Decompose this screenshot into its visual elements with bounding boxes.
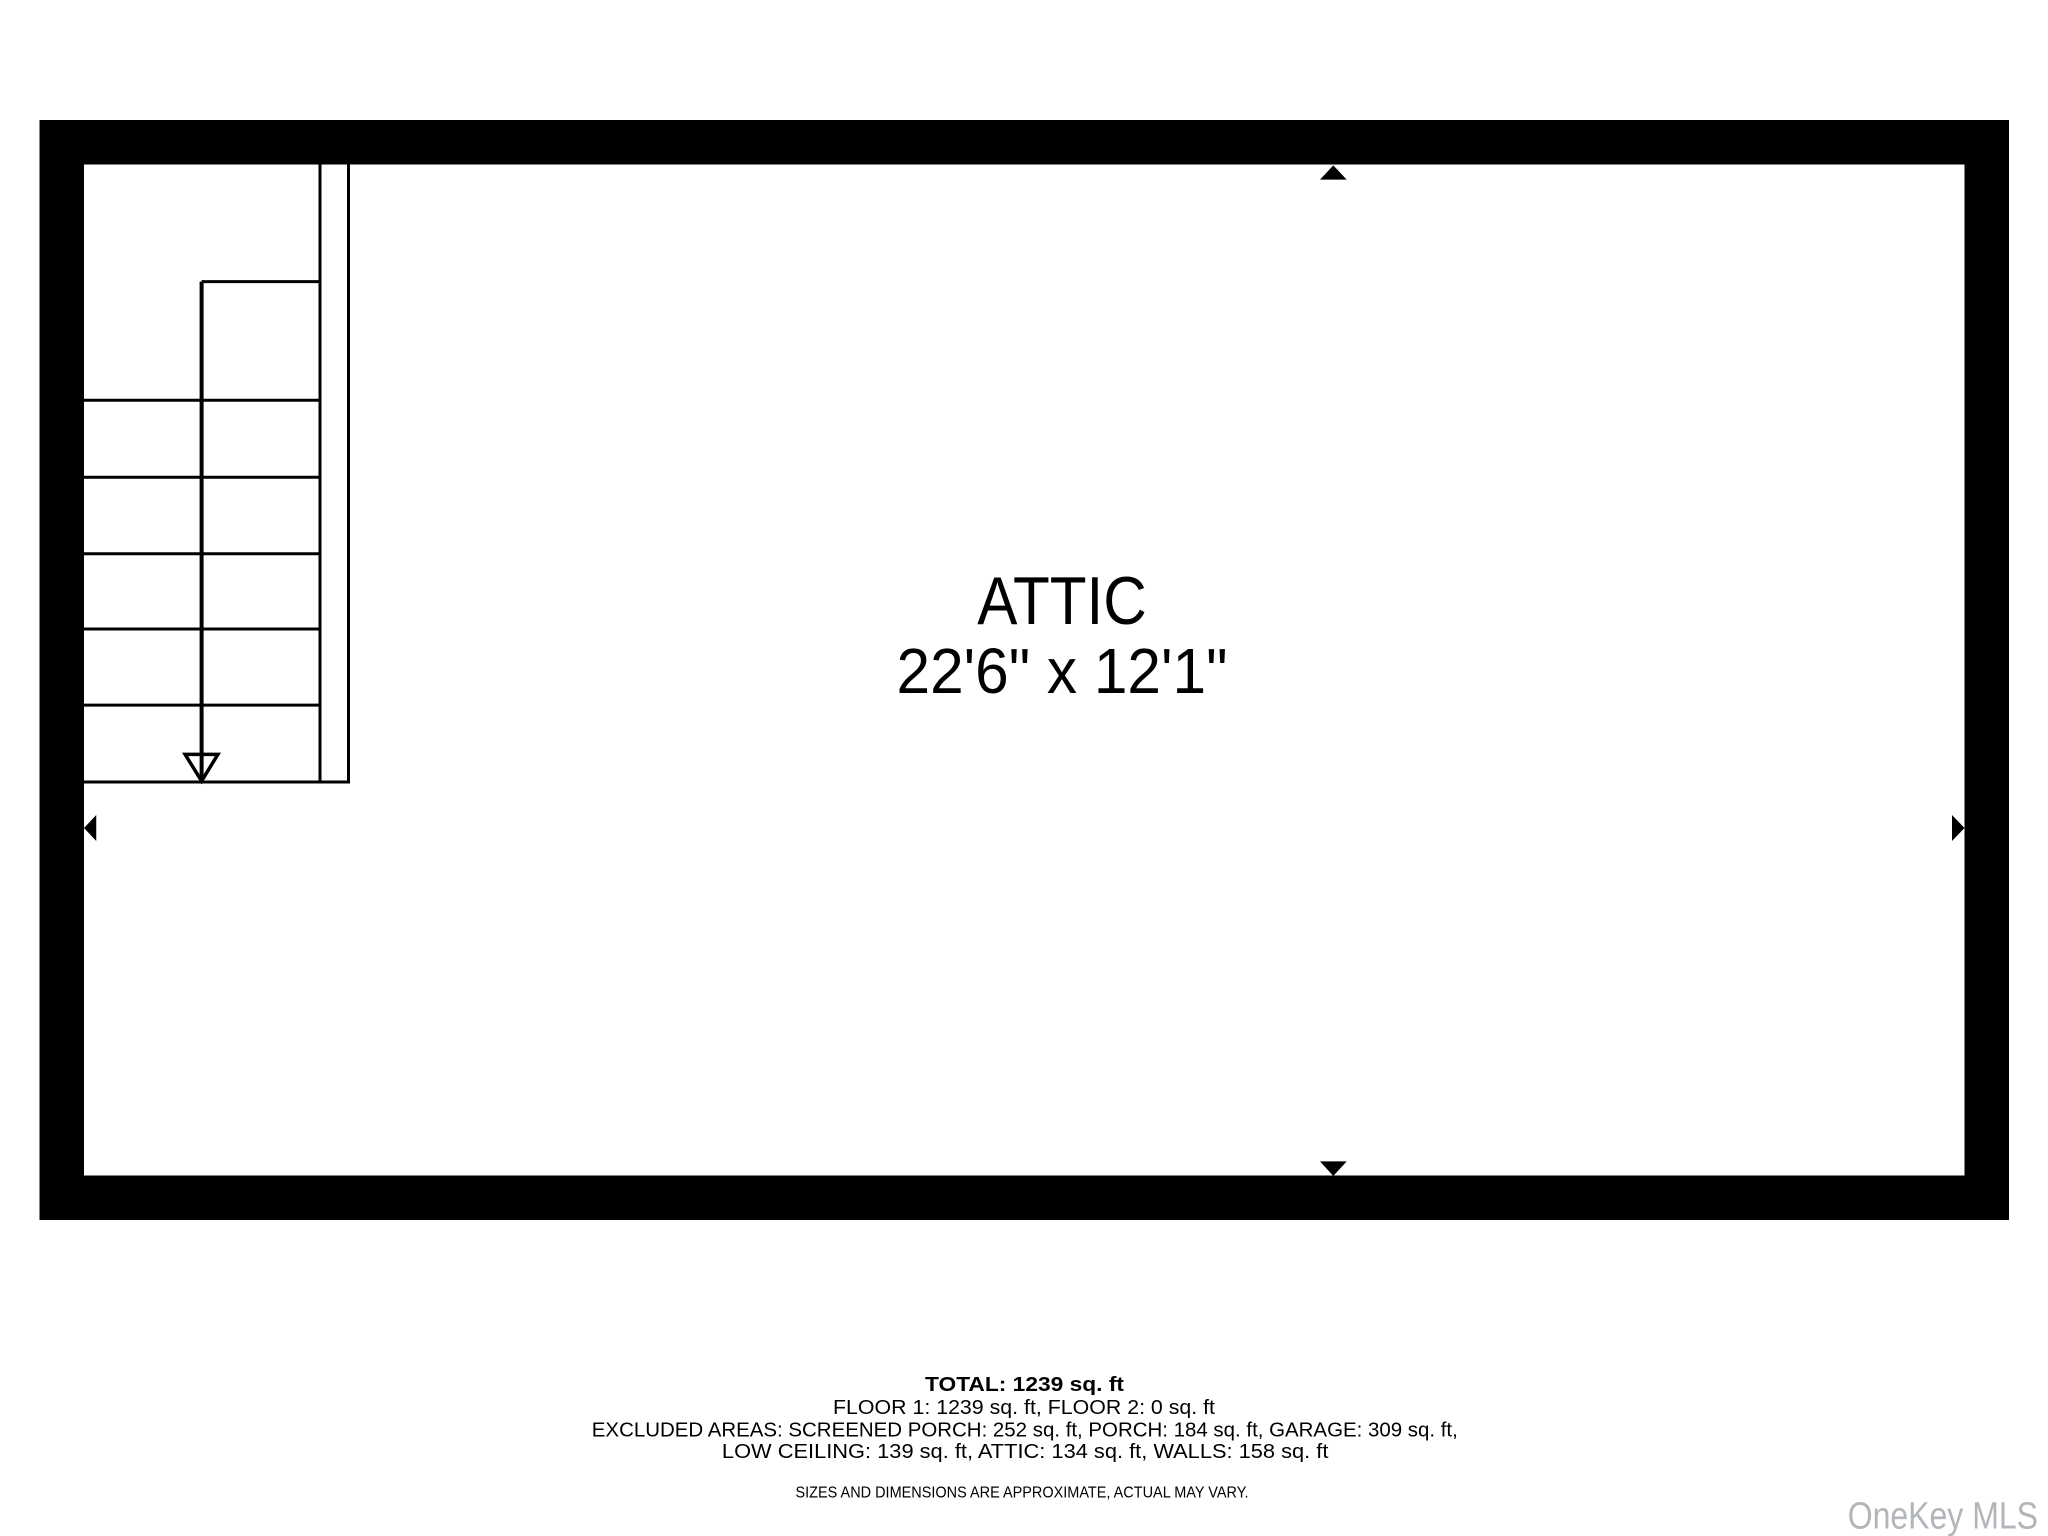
svg-text:SIZES AND DIMENSIONS ARE APPRO: SIZES AND DIMENSIONS ARE APPROXIMATE, AC… (796, 1485, 1249, 1502)
svg-text:EXCLUDED AREAS: SCREENED PORCH: EXCLUDED AREAS: SCREENED PORCH: 252 sq. … (592, 1418, 1458, 1441)
svg-text:ATTIC: ATTIC (977, 563, 1147, 639)
svg-text:LOW CEILING: 139 sq. ft, ATTIC: LOW CEILING: 139 sq. ft, ATTIC: 134 sq. … (722, 1440, 1329, 1463)
svg-text:FLOOR 1: 1239 sq. ft, FLOOR 2:: FLOOR 1: 1239 sq. ft, FLOOR 2: 0 sq. ft (833, 1396, 1215, 1419)
svg-text:TOTAL: 1239 sq. ft: TOTAL: 1239 sq. ft (925, 1373, 1124, 1396)
svg-text:OneKey MLS: OneKey MLS (1848, 1494, 2038, 1536)
svg-text:22'6" x 12'1": 22'6" x 12'1" (897, 635, 1228, 707)
